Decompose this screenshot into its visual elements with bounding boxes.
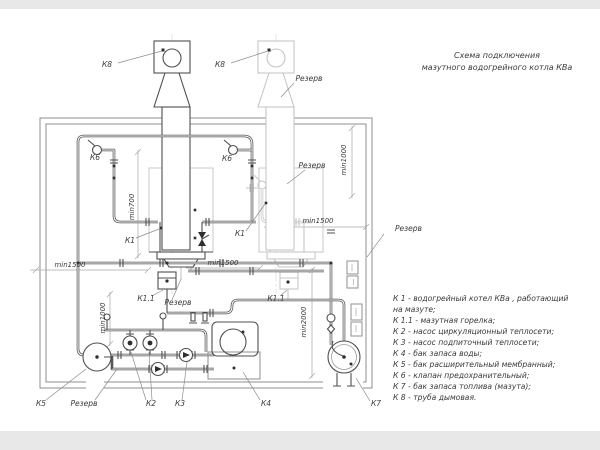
- dim-min700: min700: [128, 193, 136, 220]
- wall-gap-right: [323, 375, 363, 391]
- label-reserve-burner: Резерв: [165, 298, 192, 307]
- label-k8-right: К8: [215, 60, 225, 69]
- title-line-1: Схема подключения: [454, 51, 540, 60]
- label-k6-left: К6: [90, 153, 100, 162]
- label-k1-right: К1: [235, 229, 245, 238]
- label-k8-left: К8: [102, 60, 112, 69]
- label-k6-mid: К6: [222, 154, 232, 163]
- legend-line-2: К 1.1 - мазутная горелка;: [393, 316, 496, 325]
- dim-min1500-mid: min1500: [207, 259, 239, 267]
- legend-line-4: К 3 - насос подпиточный теплосети;: [393, 338, 540, 347]
- label-reserve-chimney: Резерв: [296, 74, 323, 83]
- label-k4: К4: [261, 399, 271, 408]
- label-reserve-wall: Резерв: [395, 224, 422, 233]
- legend-line-6: К 5 - бак расширительный мембранный;: [393, 360, 556, 369]
- label-k7: К7: [371, 399, 381, 408]
- dim-min1500-left: min1500: [54, 261, 86, 269]
- label-k1-left: К1: [125, 236, 135, 245]
- door-gap: [86, 375, 104, 391]
- legend-line-8: К 7 - бак запаса топлива (мазута);: [393, 382, 531, 391]
- label-k11-left: К1.1: [137, 294, 154, 303]
- burner-k11-right: [280, 272, 298, 289]
- legend-line-3: К 2 - насос циркуляционный теплосети;: [393, 327, 554, 336]
- legend-line-7: К 6 - клапан предохранительный;: [393, 371, 530, 380]
- label-k5: К5: [36, 399, 46, 408]
- title-line-2: мазутного водогрейного котла КВа: [422, 63, 573, 72]
- legend-line-0: К 1 - водогрейный котел КВа , работающий: [393, 294, 568, 303]
- label-k2: К2: [146, 399, 156, 408]
- legend-line-1: на мазуте;: [393, 305, 436, 314]
- label-reserve-pump: Резерв: [71, 399, 98, 408]
- boiler-connection-diagram: К8 К8 Резерв К6 К6 К1 К1 Резерв К1.1 К1.…: [0, 0, 600, 450]
- expansion-tank-k5: [83, 343, 112, 371]
- dim-min2000: min2000: [300, 306, 308, 338]
- label-reserve-boiler: Резерв: [299, 161, 326, 170]
- label-k11-right: К1.1: [267, 294, 284, 303]
- label-k3: К3: [175, 399, 185, 408]
- dim-min1500-right: min1500: [302, 217, 334, 225]
- dim-min1000-bottom: min1000: [99, 302, 107, 334]
- legend-line-5: К 4 - бак запаса воды;: [393, 349, 482, 358]
- dim-min1000-top: min1000: [340, 144, 348, 176]
- legend-line-9: К 8 - труба дымовая.: [393, 393, 476, 402]
